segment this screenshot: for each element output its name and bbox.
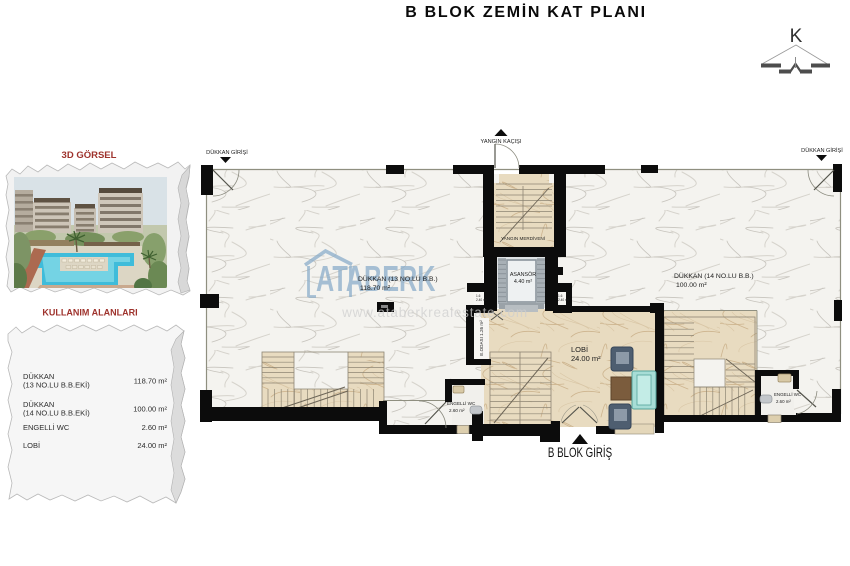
svg-text:2.40 m²: 2.40 m² — [476, 298, 487, 302]
svg-text:DÜKKAN (13 NO.LU B.B.): DÜKKAN (13 NO.LU B.B.) — [358, 275, 438, 283]
svg-text:(13 NO.LU B.B.EKİ): (13 NO.LU B.B.EKİ) — [23, 381, 90, 390]
svg-text:DÜKKAN GİRİŞİ: DÜKKAN GİRİŞİ — [801, 147, 843, 154]
svg-text:4.40 m²: 4.40 m² — [514, 279, 532, 285]
svg-text:YANGIN MERDİVENİ: YANGIN MERDİVENİ — [501, 235, 545, 241]
svg-text:DÜKKAN GİRİŞİ: DÜKKAN GİRİŞİ — [206, 149, 248, 156]
svg-text:2.60 m²: 2.60 m² — [776, 399, 791, 404]
svg-text:ENGELLİ WC: ENGELLİ WC — [774, 392, 801, 397]
svg-text:24.00 m²: 24.00 m² — [571, 354, 601, 363]
svg-text:K: K — [790, 26, 803, 47]
svg-text:118.70 m²: 118.70 m² — [134, 377, 168, 386]
svg-text:B BLOK ZEMİN KAT PLANI: B BLOK ZEMİN KAT PLANI — [405, 3, 647, 21]
svg-text:ENGELLİ WC: ENGELLİ WC — [23, 423, 70, 432]
svg-text:YANGIN KAÇIŞI: YANGIN KAÇIŞI — [481, 139, 522, 145]
svg-text:(14 NO.LU B.B.EKİ): (14 NO.LU B.B.EKİ) — [23, 409, 90, 418]
svg-text:LOBİ: LOBİ — [23, 441, 40, 450]
svg-text:DÜKKAN (14 NO.LU B.B.): DÜKKAN (14 NO.LU B.B.) — [674, 272, 754, 280]
svg-text:3D GÖRSEL: 3D GÖRSEL — [62, 150, 117, 161]
svg-text:24.00 m²: 24.00 m² — [137, 441, 167, 450]
svg-text:2.40 m²: 2.40 m² — [558, 298, 569, 302]
svg-text:ENGELLİ WC: ENGELLİ WC — [447, 400, 476, 406]
svg-text:KULLANIM ALANLARI: KULLANIM ALANLARI — [42, 308, 137, 318]
svg-text:LOBİ: LOBİ — [571, 345, 588, 354]
svg-text:www.ataberkrealestate.com: www.ataberkrealestate.com — [341, 305, 528, 320]
svg-text:2.60 m²: 2.60 m² — [449, 408, 465, 413]
svg-text:100.00 m²: 100.00 m² — [676, 282, 707, 289]
svg-text:ASANSÖR: ASANSÖR — [510, 271, 536, 278]
svg-text:E.ODASI 1.26 m²: E.ODASI 1.26 m² — [479, 320, 484, 356]
svg-text:2.60 m²: 2.60 m² — [142, 423, 168, 432]
svg-text:118.70 m²: 118.70 m² — [360, 285, 391, 292]
svg-text:B BLOK GİRİŞ: B BLOK GİRİŞ — [548, 446, 612, 461]
svg-text:100.00 m²: 100.00 m² — [133, 405, 167, 414]
